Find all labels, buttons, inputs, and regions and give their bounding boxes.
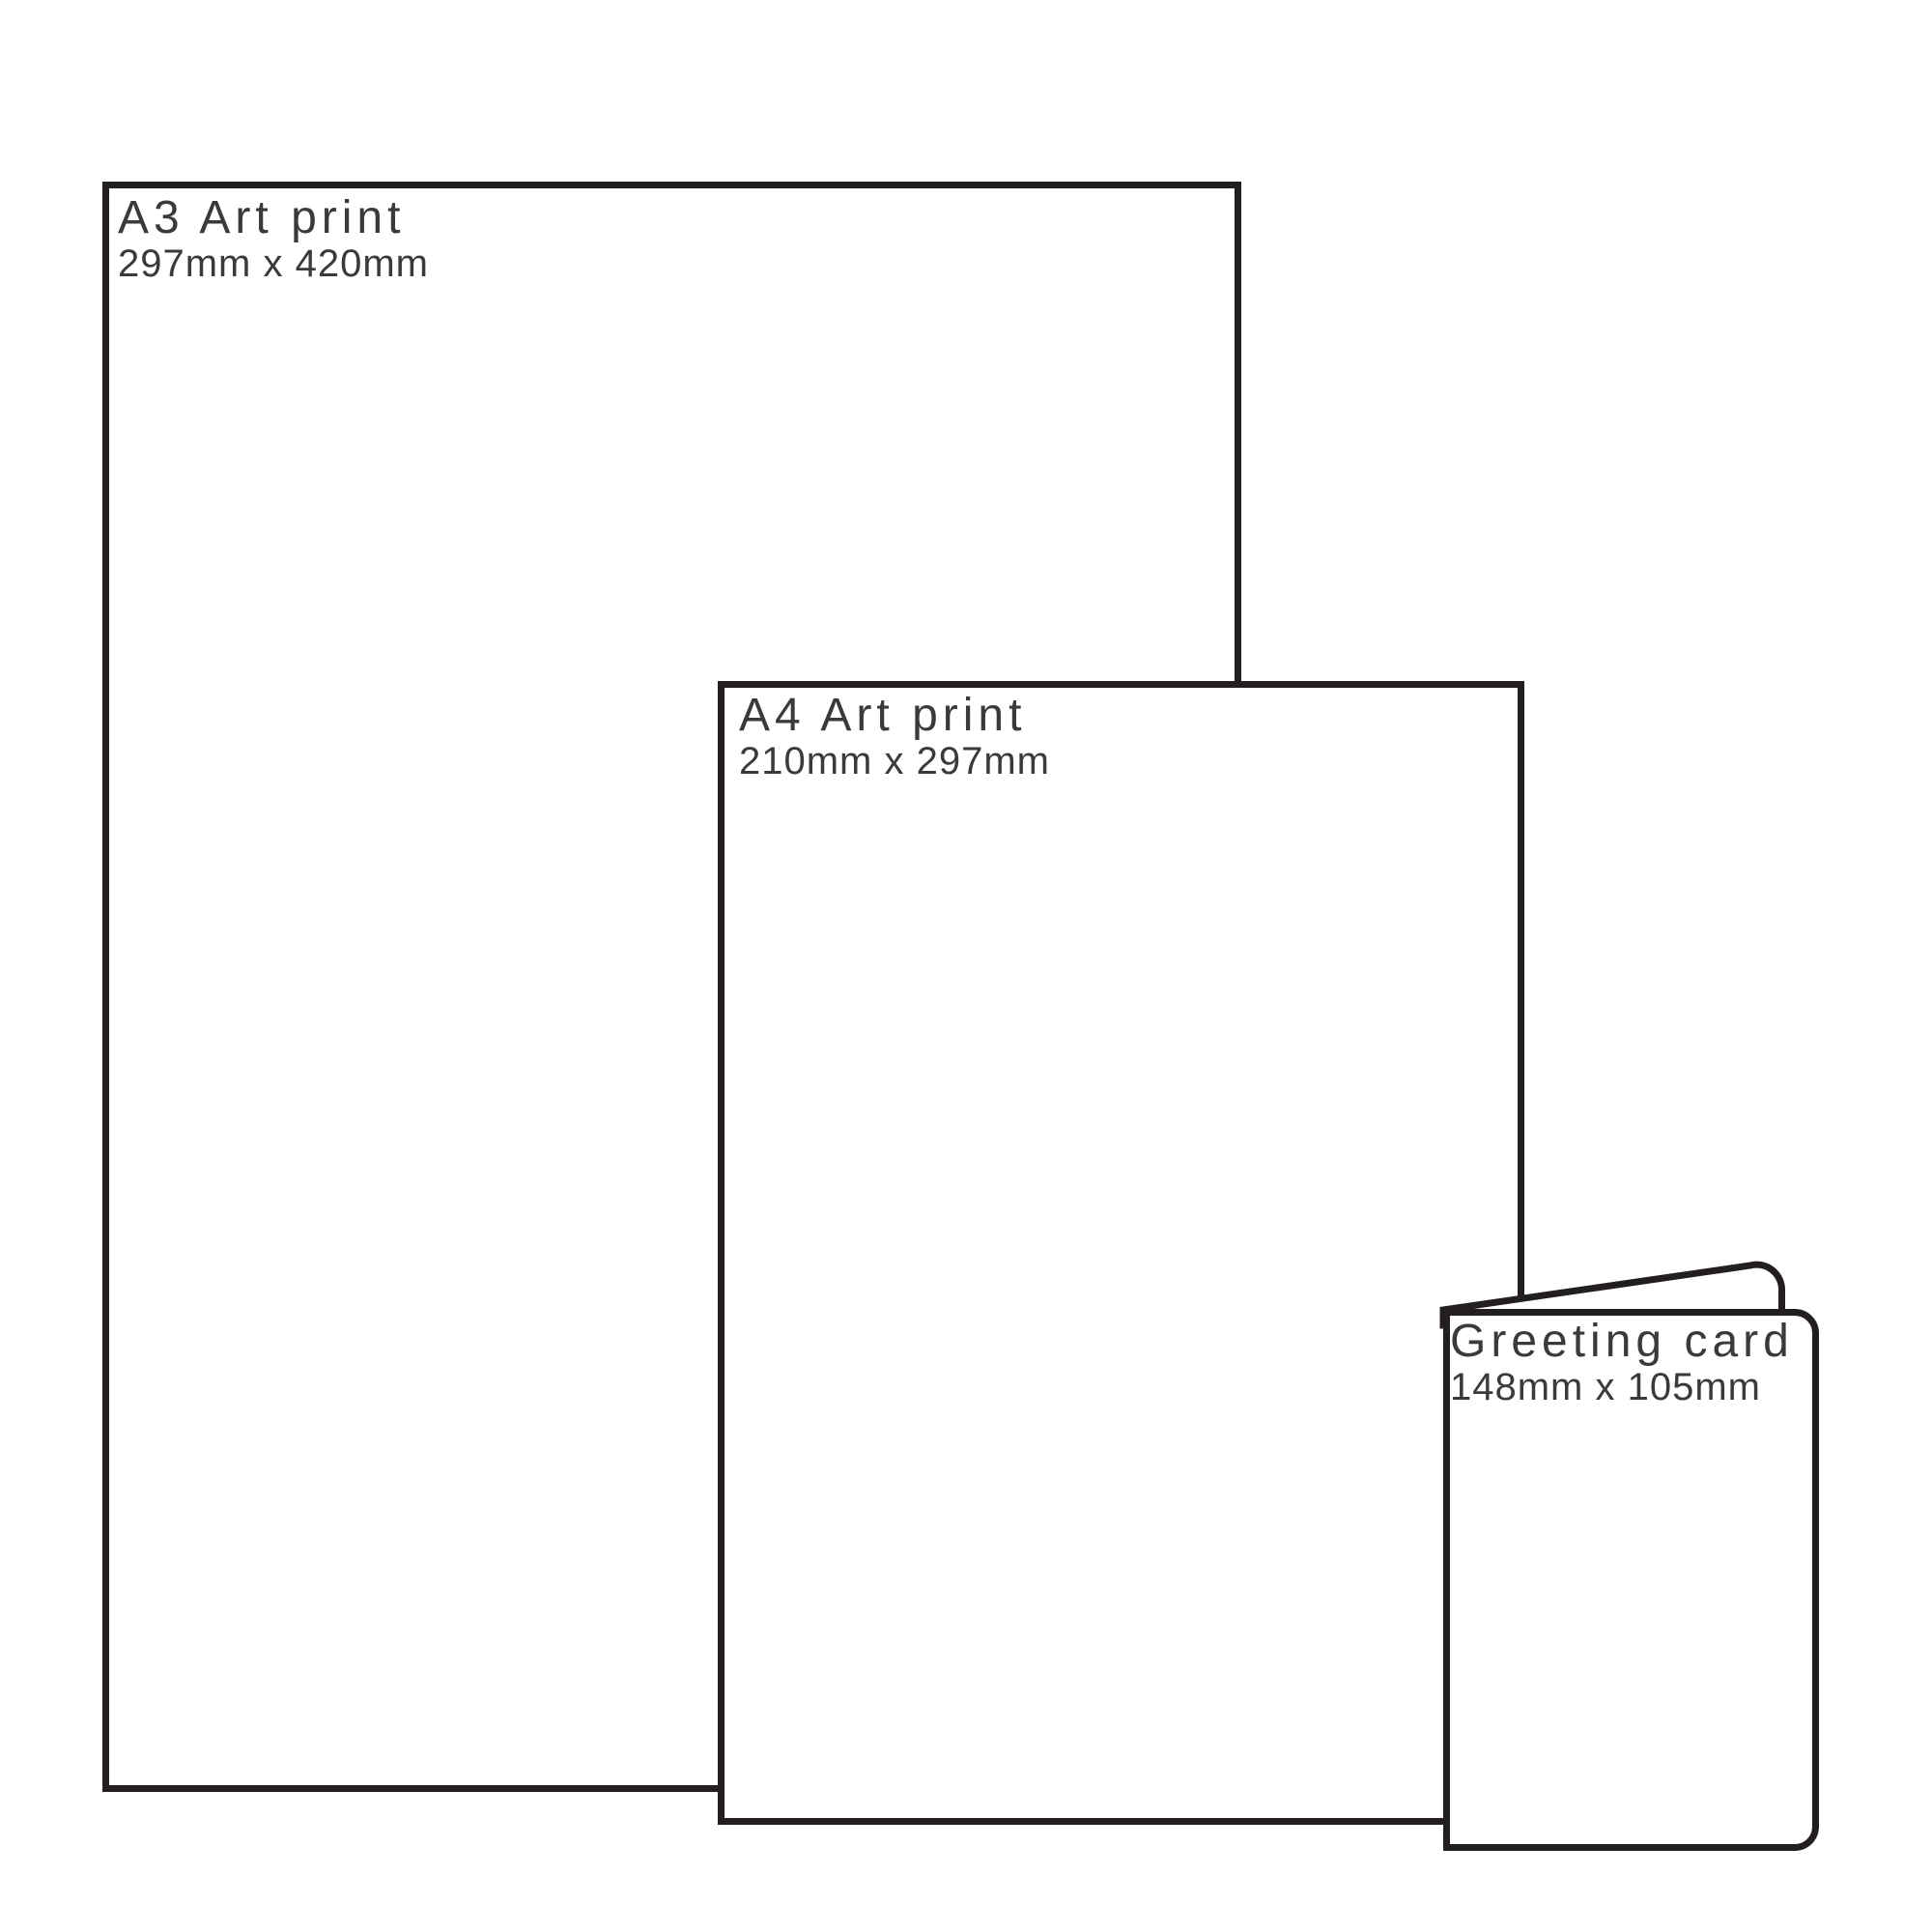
a4-dimensions: 210mm x 297mm — [739, 740, 1518, 782]
a3-dimensions: 297mm x 420mm — [118, 242, 1235, 285]
a4-label: A4 Art print 210mm x 297mm — [724, 688, 1518, 782]
greeting-card-title: Greeting card — [1450, 1318, 1794, 1366]
greeting-card-dimensions: 148mm x 105mm — [1450, 1366, 1794, 1408]
a3-title: A3 Art print — [118, 194, 1235, 242]
a3-label: A3 Art print 297mm x 420mm — [109, 188, 1235, 285]
greeting-card-label: Greeting card 148mm x 105mm — [1450, 1318, 1794, 1408]
a4-sheet-outline: A4 Art print 210mm x 297mm — [718, 681, 1524, 1825]
size-comparison-diagram: A3 Art print 297mm x 420mm A4 Art print … — [0, 0, 1932, 1932]
a4-title: A4 Art print — [739, 692, 1518, 740]
